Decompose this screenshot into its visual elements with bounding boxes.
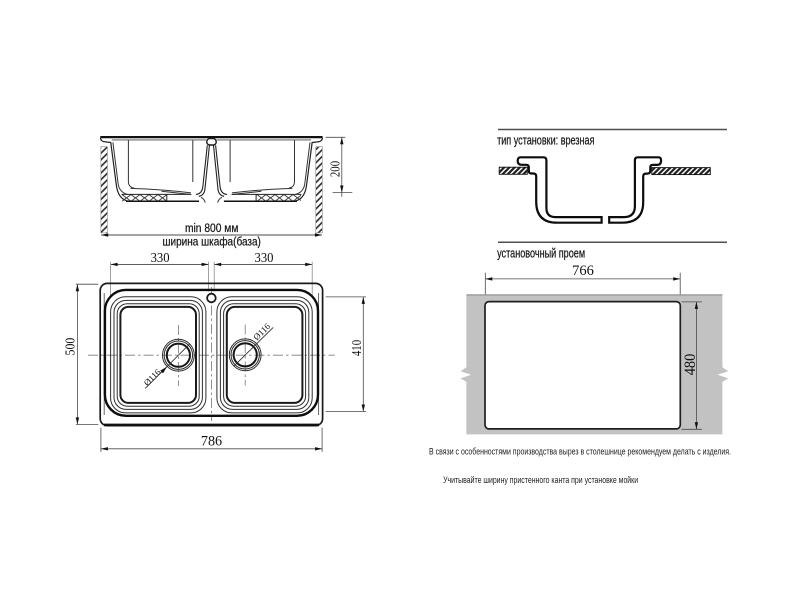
- svg-text:Учитывайте ширину пристенного: Учитывайте ширину пристенного канта при …: [443, 474, 638, 485]
- svg-text:200: 200: [328, 161, 343, 177]
- svg-text:766: 766: [572, 263, 594, 279]
- svg-text:тип установки: врезная: тип установки: врезная: [497, 133, 594, 148]
- svg-text:min 800 мм: min 800 мм: [185, 221, 238, 235]
- svg-text:ширина шкафа(база): ширина шкафа(база): [163, 235, 261, 249]
- svg-text:786: 786: [201, 433, 222, 449]
- svg-text:480: 480: [682, 353, 699, 375]
- svg-text:В связи с особенностями произв: В связи с особенностями производства выр…: [429, 446, 731, 457]
- svg-text:500: 500: [63, 338, 78, 356]
- svg-text:410: 410: [350, 340, 365, 356]
- svg-text:Ø116: Ø116: [142, 367, 163, 388]
- svg-text:установочный проем: установочный проем: [497, 245, 585, 260]
